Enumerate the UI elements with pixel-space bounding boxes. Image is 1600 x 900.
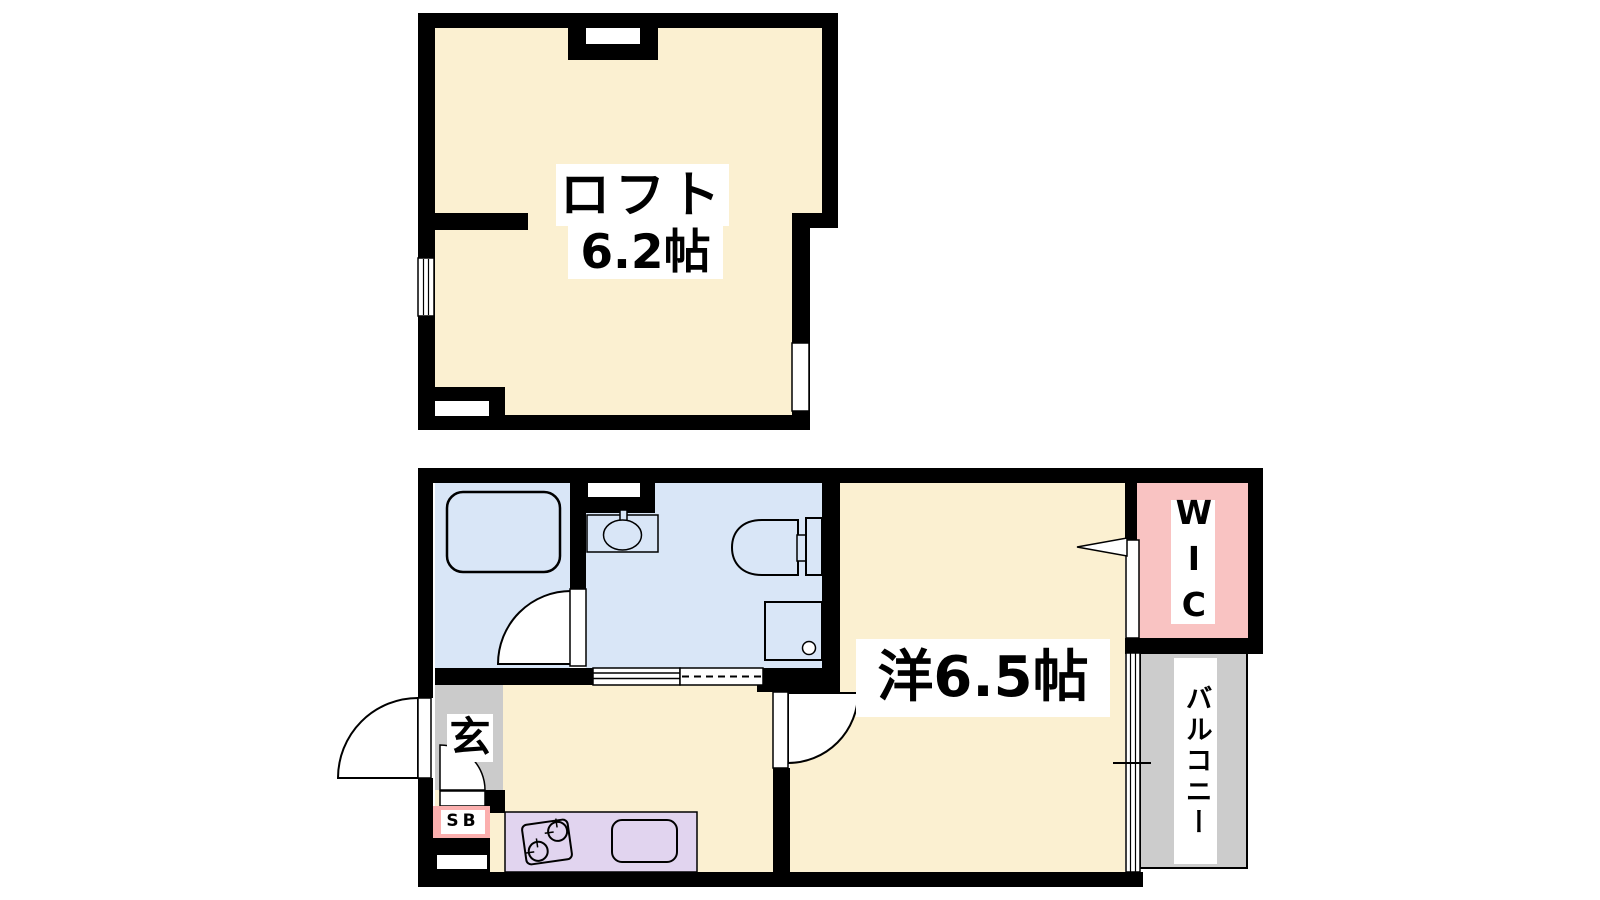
main-wall-top	[418, 468, 1263, 483]
washroom-sliding-door	[593, 668, 680, 685]
toilet-connector	[797, 535, 806, 561]
loft-window-right	[792, 343, 809, 411]
plan-drawing	[0, 0, 1600, 900]
loft-wall-right-upper	[822, 13, 838, 215]
toilet-tank	[806, 518, 822, 575]
loft-wall-left	[418, 13, 435, 387]
gas-stove	[521, 817, 572, 865]
bath-washroom-wall	[570, 483, 586, 589]
balcony-label: バルコニー	[1174, 658, 1217, 864]
bathroom-door-leaf	[570, 589, 586, 666]
toilet-bowl	[732, 520, 798, 575]
washing-machine-drain	[803, 642, 816, 655]
loft-size-label: 6.2帖	[568, 226, 723, 279]
wic-door-strip	[1126, 540, 1139, 638]
loft-window-left	[418, 258, 434, 316]
loft-name-label: ロフト	[556, 164, 729, 226]
loft-dormer-window	[586, 28, 640, 44]
main-wall-right	[1248, 468, 1263, 654]
floor-plan-canvas: ロフト 6.2帖 洋6.5帖 玄 SB WIC バルコニー	[0, 0, 1600, 900]
wic-west-wall	[1125, 483, 1137, 540]
loft-hatch-opening	[588, 483, 640, 497]
shoebox-label: SB	[441, 810, 485, 834]
loft-wall-stub	[435, 213, 528, 230]
loft-wall-bottom	[505, 415, 810, 430]
loft-wall-top	[418, 13, 838, 28]
entrance-label: 玄	[447, 714, 493, 762]
hall-room-wall	[773, 768, 790, 872]
entrance-door-swing	[338, 698, 418, 778]
room-door-leaf	[773, 692, 788, 768]
kitchen-sink	[612, 820, 677, 862]
main-wall-bottom	[418, 872, 1143, 887]
main-wall-left-lower	[418, 778, 433, 887]
washroom-room-wall	[822, 468, 840, 692]
wic-bottom-wall	[1125, 638, 1263, 654]
wic-label: WIC	[1171, 500, 1215, 624]
loft-window-bottom	[435, 401, 489, 416]
western-room-label: 洋6.5帖	[856, 639, 1110, 717]
entrance-step	[440, 791, 485, 806]
bathtub	[447, 492, 560, 572]
washroom-corner-block	[757, 668, 840, 692]
shoebox-bottom-window	[437, 855, 487, 869]
main-wall-left-upper	[418, 468, 433, 698]
entrance-door-leaf	[418, 698, 431, 778]
bathroom-bottom-wall	[435, 668, 593, 685]
washbasin-bowl	[604, 520, 642, 550]
